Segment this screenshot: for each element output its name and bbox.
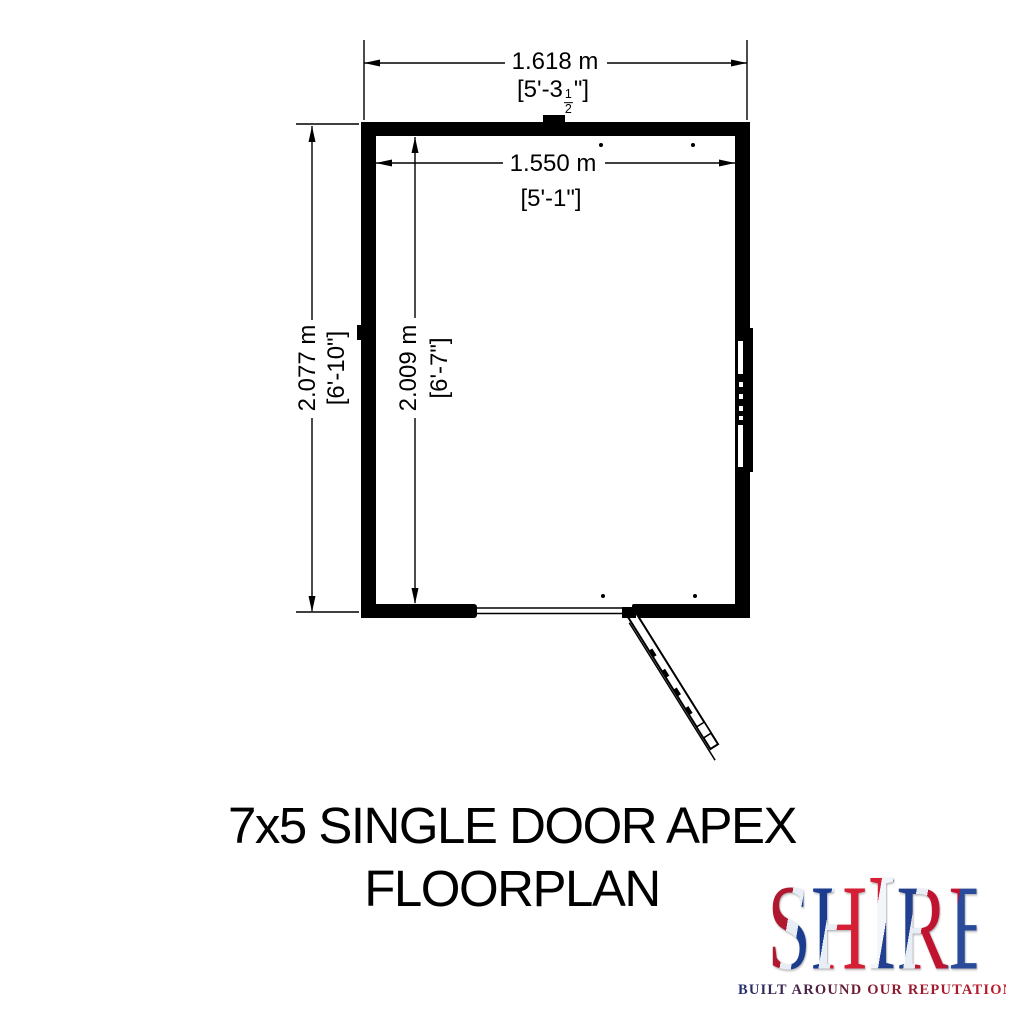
shire-logo: SHIRE BUILT AROUND OUR REPUTATION	[738, 884, 1006, 999]
dim-top-inner-metric: 1.550 m	[510, 152, 597, 176]
fixing-dot	[599, 143, 603, 147]
window-mullion-gap	[739, 416, 743, 420]
dim-side-inner-imperial: [6'-7"]	[428, 337, 452, 398]
window-mullion-gap	[739, 394, 743, 399]
dim-side-outer-imperial: [6'-10"]	[325, 331, 349, 405]
apex-ridge-marker	[543, 115, 565, 123]
dim-side-inner-metric: 2.009 m	[397, 325, 421, 412]
fraction: 12	[564, 89, 573, 116]
window-glazing-upper	[738, 341, 743, 374]
fixing-dot	[691, 143, 695, 147]
left-wall-stud-marker	[357, 325, 365, 340]
window-mullion-gap	[739, 382, 743, 387]
wall-bottom-right-segment	[632, 604, 750, 618]
door-hinge	[622, 607, 636, 618]
logo-letters-re: RE	[897, 860, 997, 995]
dim-top-outer-metric: 1.618 m	[512, 50, 599, 74]
floorplan-drawing	[0, 0, 1024, 780]
fixing-dot	[601, 594, 605, 598]
fraction-numerator: 1	[564, 89, 573, 103]
logo-letter-i: I	[867, 846, 896, 999]
imperial-prefix: [5'-3	[517, 76, 563, 103]
wall-top	[361, 122, 750, 136]
wall-left	[361, 122, 376, 618]
shed-floorplan-page: 1.618 m [5'-312"] 1.550 m [5'-1"] 2.077 …	[0, 0, 1024, 1024]
window-mullion-gap	[739, 406, 743, 411]
shire-logo-wordmark: SHIRE	[767, 865, 976, 982]
imperial-suffix: "]	[574, 76, 589, 103]
dim-top-inner-imperial: [5'-1"]	[520, 187, 581, 211]
door-leaf	[626, 612, 724, 760]
dim-top-outer-imperial: [5'-312"]	[517, 78, 589, 116]
logo-letters-sh: SH	[767, 860, 867, 995]
window-frame	[735, 328, 753, 472]
window-glazing-lower	[738, 425, 743, 467]
door-threshold	[477, 608, 633, 614]
fraction-denominator: 2	[565, 103, 572, 116]
dim-side-outer-metric: 2.077 m	[296, 325, 320, 412]
window-right-wall	[735, 328, 753, 472]
fixing-dot	[693, 594, 697, 598]
wall-bottom-left-segment	[361, 604, 477, 618]
